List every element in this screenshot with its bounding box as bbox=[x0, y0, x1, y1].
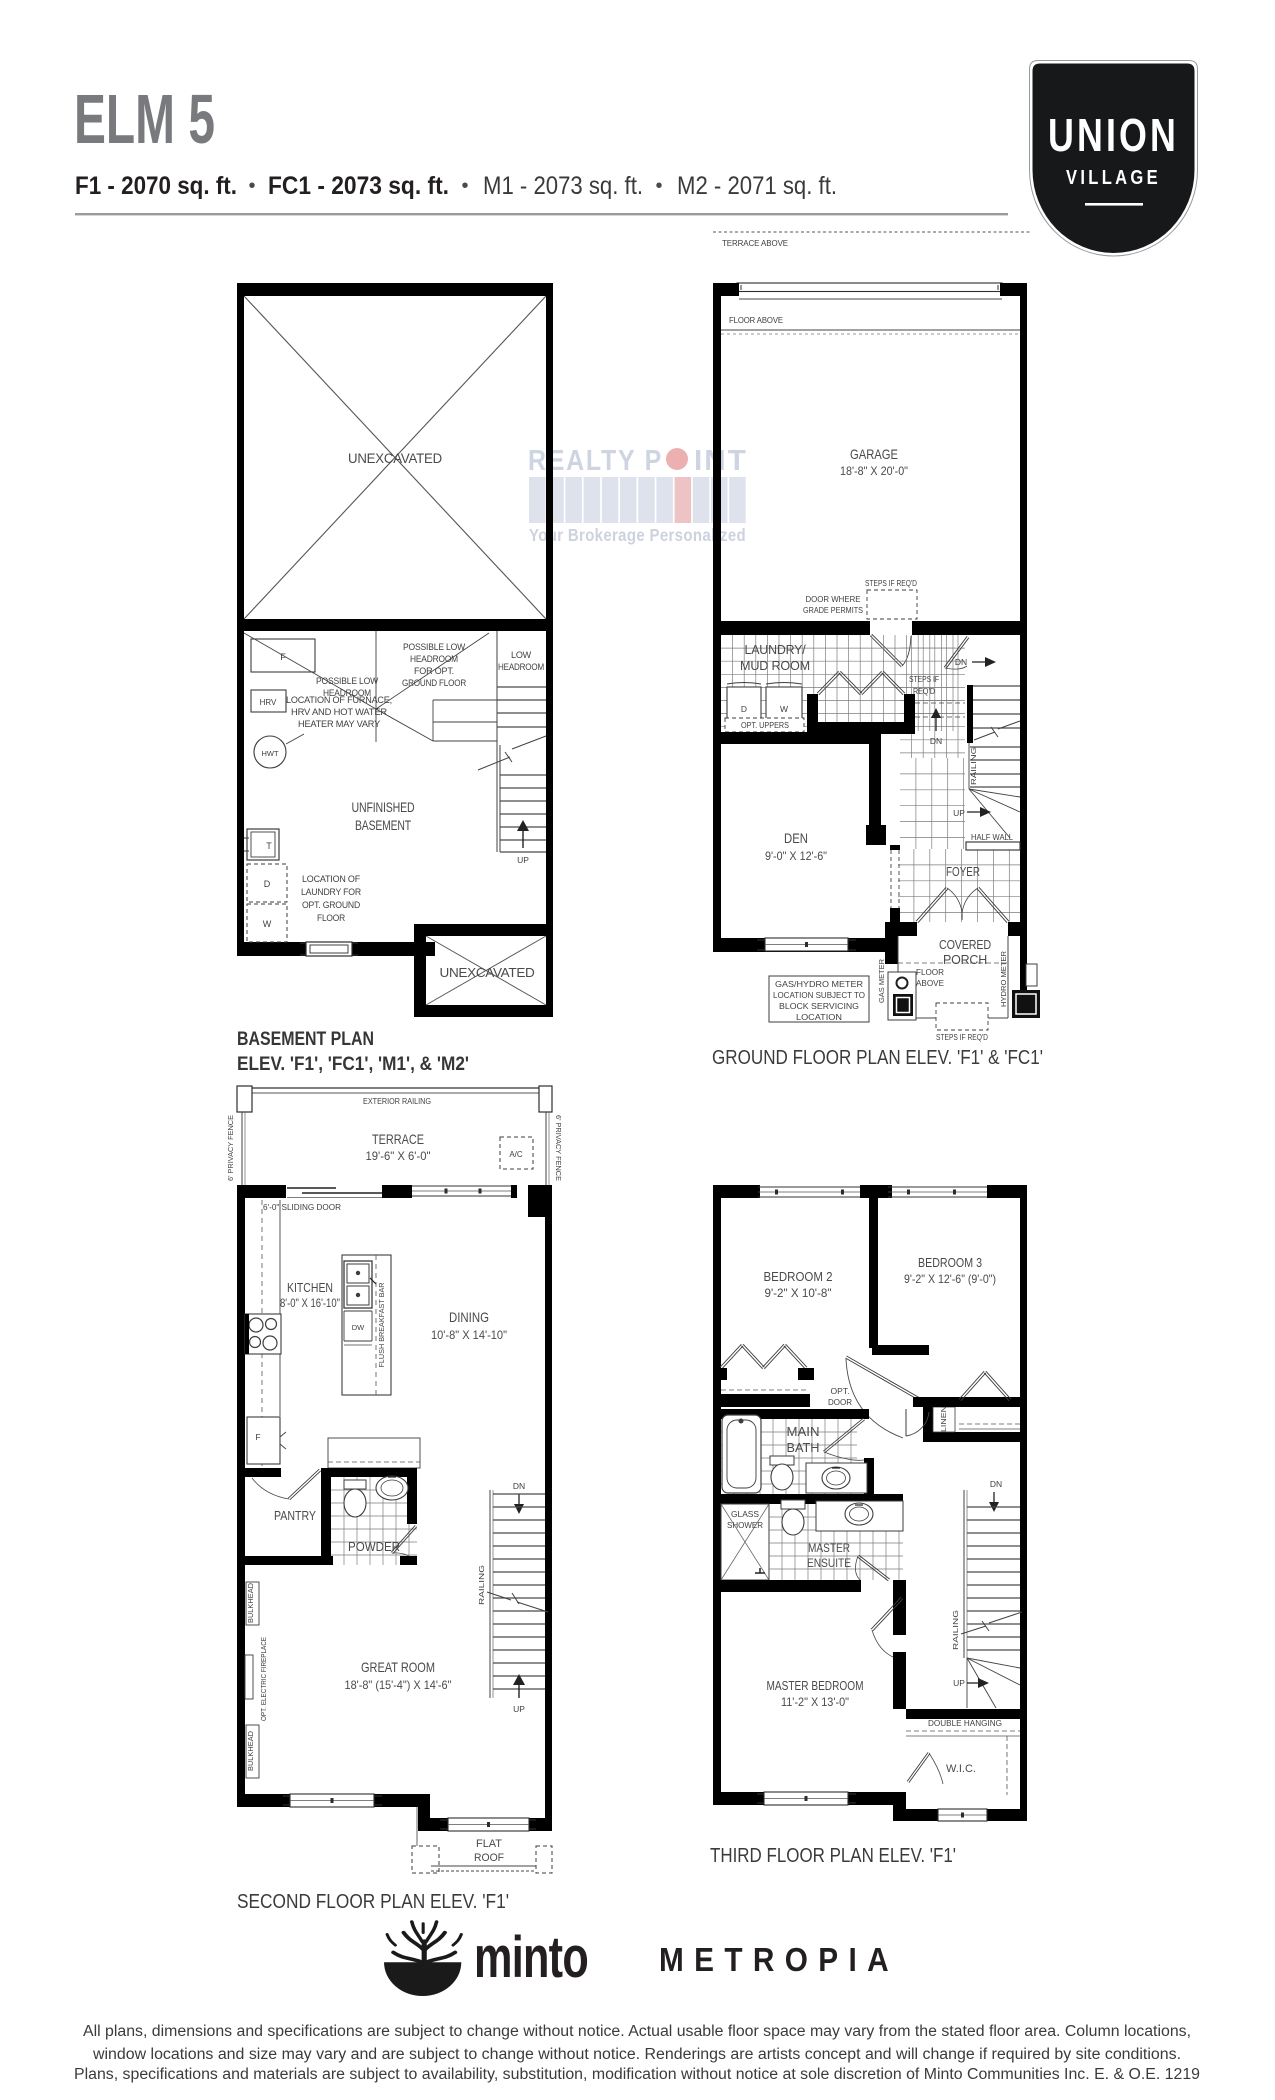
svg-text:BEDROOM 3: BEDROOM 3 bbox=[918, 1255, 982, 1270]
svg-text:FLOOR ABOVE: FLOOR ABOVE bbox=[729, 315, 783, 325]
svg-text:FLUSH BREAKFAST BAR: FLUSH BREAKFAST BAR bbox=[377, 1282, 386, 1368]
svg-text:MASTER BEDROOM: MASTER BEDROOM bbox=[767, 1678, 864, 1693]
svg-text:TERRACE ABOVE: TERRACE ABOVE bbox=[722, 238, 788, 248]
svg-text:DEN: DEN bbox=[784, 830, 808, 846]
svg-text:THIRD FLOOR PLAN ELEV. 'F1': THIRD FLOOR PLAN ELEV. 'F1' bbox=[710, 1845, 956, 1867]
svg-text:6' PRIVACY FENCE: 6' PRIVACY FENCE bbox=[226, 1115, 235, 1181]
svg-text:All plans, dimensions and spec: All plans, dimensions and specifications… bbox=[83, 2023, 1191, 2040]
svg-text:MAIN: MAIN bbox=[787, 1424, 820, 1439]
svg-text:BLOCK SERVICING: BLOCK SERVICING bbox=[779, 1001, 859, 1011]
svg-text:•: • bbox=[461, 175, 468, 197]
svg-text:9'-2" X 12'-6" (9'-0"): 9'-2" X 12'-6" (9'-0") bbox=[904, 1272, 996, 1286]
svg-text:6' PRIVACY FENCE: 6' PRIVACY FENCE bbox=[554, 1115, 563, 1181]
svg-text:W: W bbox=[780, 704, 788, 714]
svg-text:RAILING: RAILING bbox=[477, 1565, 486, 1605]
svg-text:FLAT: FLAT bbox=[476, 1838, 502, 1850]
svg-text:•: • bbox=[248, 175, 255, 197]
svg-text:FC1 - 2073 sq. ft.: FC1 - 2073 sq. ft. bbox=[268, 172, 449, 200]
svg-text:PORCH: PORCH bbox=[943, 952, 987, 967]
svg-text:LAUNDRY/: LAUNDRY/ bbox=[745, 642, 807, 657]
svg-text:UNEXCAVATED: UNEXCAVATED bbox=[440, 966, 535, 980]
svg-text:M2 - 2071 sq. ft.: M2 - 2071 sq. ft. bbox=[677, 172, 837, 200]
svg-text:OPT.: OPT. bbox=[831, 1386, 850, 1396]
svg-text:DN: DN bbox=[955, 657, 967, 667]
svg-text:ROOF: ROOF bbox=[474, 1852, 504, 1864]
svg-text:D: D bbox=[264, 879, 271, 889]
svg-text:OPT. ELECTRIC FIREPLACE: OPT. ELECTRIC FIREPLACE bbox=[261, 1637, 268, 1721]
svg-text:HYDRO METER: HYDRO METER bbox=[999, 950, 1008, 1007]
svg-text:D: D bbox=[741, 704, 747, 714]
svg-text:T: T bbox=[266, 841, 272, 851]
svg-text:KITCHEN: KITCHEN bbox=[287, 1280, 333, 1295]
svg-text:A/C: A/C bbox=[509, 1150, 523, 1159]
svg-text:GROUND FLOOR: GROUND FLOOR bbox=[402, 678, 466, 689]
svg-text:BULKHEAD: BULKHEAD bbox=[248, 1731, 255, 1771]
svg-text:LAUNDRY FOR: LAUNDRY FOR bbox=[301, 887, 361, 898]
svg-text:DN: DN bbox=[990, 1479, 1002, 1489]
svg-text:HALF WALL: HALF WALL bbox=[971, 832, 1013, 842]
svg-text:HWT: HWT bbox=[261, 749, 278, 758]
svg-text:DW: DW bbox=[352, 1323, 365, 1332]
svg-text:18'-8" (15'-4") X 14'-6": 18'-8" (15'-4") X 14'-6" bbox=[345, 1678, 452, 1692]
svg-text:19'-6" X 6'-0": 19'-6" X 6'-0" bbox=[366, 1149, 431, 1163]
svg-text:DOOR: DOOR bbox=[828, 1397, 852, 1407]
svg-text:UNION: UNION bbox=[1048, 109, 1179, 161]
svg-text:ELM 5: ELM 5 bbox=[74, 80, 215, 158]
svg-text:MASTER: MASTER bbox=[808, 1541, 850, 1555]
svg-text:HEATER MAY VARY: HEATER MAY VARY bbox=[298, 719, 381, 730]
svg-text:FOYER: FOYER bbox=[946, 864, 980, 879]
svg-text:UNEXCAVATED: UNEXCAVATED bbox=[348, 451, 442, 466]
svg-text:VILLAGE: VILLAGE bbox=[1066, 167, 1161, 189]
svg-text:window locations and size may: window locations and size may vary and a… bbox=[92, 2046, 1181, 2063]
svg-text:GREAT ROOM: GREAT ROOM bbox=[361, 1659, 435, 1675]
svg-text:DOUBLE HANGING: DOUBLE HANGING bbox=[928, 1718, 1002, 1728]
svg-text:FOR OPT.: FOR OPT. bbox=[414, 666, 454, 677]
svg-text:•: • bbox=[655, 175, 662, 197]
svg-text:M1 - 2073 sq. ft.: M1 - 2073 sq. ft. bbox=[483, 172, 643, 200]
svg-text:UNFINISHED: UNFINISHED bbox=[352, 800, 415, 815]
svg-text:TERRACE: TERRACE bbox=[372, 1131, 424, 1147]
svg-text:COVERED: COVERED bbox=[939, 937, 991, 952]
svg-text:W: W bbox=[263, 919, 272, 929]
svg-text:HEADROOM: HEADROOM bbox=[498, 662, 544, 673]
svg-text:Plans, specifications and mate: Plans, specifications and materials are … bbox=[74, 2066, 1200, 2083]
svg-text:HEADROOM: HEADROOM bbox=[410, 654, 458, 665]
svg-text:18'-8" X 20'-0": 18'-8" X 20'-0" bbox=[840, 464, 908, 478]
svg-text:DOOR WHERE: DOOR WHERE bbox=[806, 594, 861, 604]
svg-text:FLOOR: FLOOR bbox=[317, 913, 345, 924]
svg-text:GARAGE: GARAGE bbox=[850, 446, 898, 462]
svg-text:11'-2" X 13'-0": 11'-2" X 13'-0" bbox=[781, 1695, 849, 1709]
svg-text:minto: minto bbox=[474, 1925, 588, 1990]
svg-text:BULKHEAD: BULKHEAD bbox=[248, 1583, 255, 1623]
svg-text:OPT. GROUND: OPT. GROUND bbox=[302, 900, 360, 911]
svg-text:OPT. UPPERS: OPT. UPPERS bbox=[741, 721, 789, 730]
svg-text:HRV AND HOT WATER: HRV AND HOT WATER bbox=[291, 707, 387, 718]
svg-text:LOCATION OF FURNACE,: LOCATION OF FURNACE, bbox=[286, 695, 392, 706]
svg-text:LINEN: LINEN bbox=[939, 1406, 948, 1432]
svg-text:REQ'D: REQ'D bbox=[913, 687, 935, 696]
svg-text:8'-0" X 16'-10": 8'-0" X 16'-10" bbox=[280, 1296, 340, 1310]
svg-text:ABOVE: ABOVE bbox=[916, 978, 944, 988]
svg-text:SECOND FLOOR PLAN ELEV. 'F1': SECOND FLOOR PLAN ELEV. 'F1' bbox=[237, 1891, 509, 1913]
svg-text:LOCATION OF: LOCATION OF bbox=[302, 874, 360, 885]
svg-text:RAILING: RAILING bbox=[951, 1610, 960, 1650]
svg-text:F: F bbox=[255, 1432, 260, 1442]
svg-text:HRV: HRV bbox=[260, 698, 277, 707]
svg-text:BASEMENT: BASEMENT bbox=[355, 818, 411, 833]
svg-text:LOW: LOW bbox=[511, 650, 531, 661]
svg-text:9'-2" X 10'-8": 9'-2" X 10'-8" bbox=[765, 1286, 832, 1300]
svg-text:UP: UP bbox=[953, 1678, 965, 1688]
svg-text:GLASS: GLASS bbox=[731, 1509, 759, 1519]
svg-text:LOCATION SUBJECT TO: LOCATION SUBJECT TO bbox=[773, 990, 865, 1000]
svg-text:GAS METER: GAS METER bbox=[877, 958, 886, 1003]
svg-text:GAS/HYDRO METER: GAS/HYDRO METER bbox=[775, 979, 863, 989]
svg-text:BEDROOM 2: BEDROOM 2 bbox=[764, 1269, 833, 1284]
svg-text:BASEMENT PLAN: BASEMENT PLAN bbox=[237, 1029, 374, 1050]
svg-text:PANTRY: PANTRY bbox=[274, 1508, 316, 1523]
svg-text:6'-0" SLIDING DOOR: 6'-0" SLIDING DOOR bbox=[263, 1202, 341, 1212]
svg-text:9'-0" X 12'-6": 9'-0" X 12'-6" bbox=[765, 849, 827, 863]
svg-text:LOCATION: LOCATION bbox=[796, 1012, 842, 1022]
svg-text:UP: UP bbox=[517, 855, 529, 865]
svg-text:RAILING: RAILING bbox=[969, 747, 978, 785]
svg-text:10'-8" X 14'-10": 10'-8" X 14'-10" bbox=[431, 1328, 507, 1342]
svg-text:MUD ROOM: MUD ROOM bbox=[740, 658, 810, 673]
svg-text:STEPS IF REQ'D: STEPS IF REQ'D bbox=[865, 579, 917, 588]
svg-text:UP: UP bbox=[513, 1704, 525, 1714]
svg-text:DN: DN bbox=[513, 1481, 525, 1491]
svg-text:BATH: BATH bbox=[787, 1440, 820, 1455]
svg-text:GRADE PERMITS: GRADE PERMITS bbox=[803, 605, 863, 615]
svg-text:EXTERIOR RAILING: EXTERIOR RAILING bbox=[363, 1096, 431, 1106]
svg-text:ELEV. 'F1', 'FC1', 'M1', & 'M2: ELEV. 'F1', 'FC1', 'M1', & 'M2' bbox=[237, 1054, 469, 1075]
svg-text:POSSIBLE LOW: POSSIBLE LOW bbox=[403, 642, 465, 653]
svg-text:METROPIA: METROPIA bbox=[659, 1941, 899, 1978]
svg-text:F1 - 2070 sq. ft.: F1 - 2070 sq. ft. bbox=[75, 172, 237, 200]
svg-text:POSSIBLE LOW: POSSIBLE LOW bbox=[316, 676, 378, 687]
svg-text:FLOOR: FLOOR bbox=[916, 967, 944, 977]
svg-text:SHOWER: SHOWER bbox=[727, 1520, 763, 1530]
svg-text:ENSUITE: ENSUITE bbox=[807, 1556, 851, 1570]
svg-text:DINING: DINING bbox=[449, 1309, 489, 1325]
svg-text:W.I.C.: W.I.C. bbox=[946, 1763, 976, 1775]
svg-text:DN: DN bbox=[930, 736, 942, 746]
svg-text:STEPS IF: STEPS IF bbox=[909, 675, 939, 684]
svg-text:F: F bbox=[280, 652, 286, 662]
svg-text:UP: UP bbox=[953, 808, 965, 818]
svg-text:GROUND FLOOR PLAN ELEV. 'F1' &: GROUND FLOOR PLAN ELEV. 'F1' & 'FC1' bbox=[712, 1047, 1043, 1069]
svg-text:STEPS IF REQ'D: STEPS IF REQ'D bbox=[936, 1033, 988, 1042]
